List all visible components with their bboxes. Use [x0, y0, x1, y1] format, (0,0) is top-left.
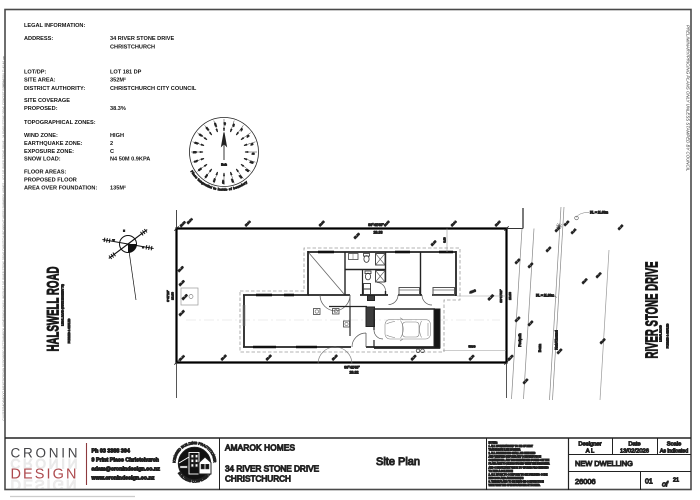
svg-text:CHRISTCHURCH: CHRISTCHURCH	[225, 475, 291, 484]
svg-text:13/02/2026: 13/02/2026	[620, 449, 649, 455]
svg-text:SITE AREA:: SITE AREA:	[24, 78, 56, 84]
svg-text:NEW DWELLING: NEW DWELLING	[575, 459, 633, 468]
svg-text:PRELIMINARY/PRICING PLANS ONLY: PRELIMINARY/PRICING PLANS ONLY UNLESS ST…	[686, 25, 691, 172]
svg-text:5660: 5660	[469, 345, 476, 349]
svg-text:AND VERIFIED BEFORE ANY CONSTR: AND VERIFIED BEFORE ANY CONSTRUCTION	[489, 456, 542, 459]
svg-text:CHRISTCHURCH CITY COUNCIL: CHRISTCHURCH CITY COUNCIL	[110, 86, 197, 92]
svg-text:C:\USERS\ADAM\DOCUMENTS\CRONIN: C:\USERS\ADAM\DOCUMENTS\CRONIN DESIGN\PR…	[2, 79, 6, 420]
svg-text:2. ALL WORK TO CONFORM TO NZ B: 2. ALL WORK TO CONFORM TO NZ BUILDING CO…	[489, 473, 548, 476]
svg-text:RIVER STONE DRIVE: RIVER STONE DRIVE	[642, 262, 662, 359]
svg-text:NZBC3604 AND AMENDMENTS: NZBC3604 AND AMENDMENTS	[489, 477, 524, 480]
svg-text:Site Plan: Site Plan	[376, 456, 420, 468]
svg-text:99°42'40": 99°42'40"	[344, 366, 360, 370]
svg-text:0.99: 0.99	[443, 237, 447, 243]
svg-text:Footpath: Footpath	[518, 333, 522, 346]
svg-text:3. THESE PLANS TO BE READ IN C: 3. THESE PLANS TO BE READ IN CONJUNCTION	[489, 480, 545, 483]
svg-text:26006: 26006	[575, 477, 596, 486]
svg-text:2. ALL DIMENSIONS SHALL BE CHE: 2. ALL DIMENSIONS SHALL BE CHECKED	[489, 452, 536, 455]
svg-text:SITE COVERAGE: SITE COVERAGE	[24, 98, 70, 104]
svg-text:PLANS ARE TO BE DISCUSSED WITH: PLANS ARE TO BE DISCUSSED WITH THE DESIG…	[489, 463, 550, 466]
svg-text:TRADESMAN LIKE MANNER: TRADESMAN LIKE MANNER	[489, 449, 521, 452]
svg-text:N4 50M 0.9KPA: N4 50M 0.9KPA	[110, 157, 150, 163]
svg-text:AREA OVER FOUNDATION:: AREA OVER FOUNDATION:	[24, 186, 97, 192]
svg-text:EARTHQUAKE ZONE:: EARTHQUAKE ZONE:	[24, 141, 83, 147]
svg-text:As indicated: As indicated	[660, 449, 688, 455]
svg-text:29.33: 29.33	[374, 231, 383, 235]
svg-text:TO FIND A SOLUTION: TO FIND A SOLUTION	[489, 470, 514, 473]
svg-text:Date: Date	[628, 442, 640, 448]
svg-text:adam@cronindesign.co.nz: adam@cronindesign.co.nz	[92, 467, 161, 473]
svg-text:TOPOGRAPHICAL ZONES:: TOPOGRAPHICAL ZONES:	[24, 120, 96, 126]
svg-text:9 Print Place Christchurch: 9 Print Place Christchurch	[92, 458, 159, 464]
svg-text:CHRISTCHURCH: CHRISTCHURCH	[110, 45, 155, 51]
svg-text:SNOW LOAD:: SNOW LOAD:	[24, 157, 61, 163]
svg-text:34 RIVER STONE DRIVE: 34 RIVER STONE DRIVE	[225, 465, 320, 474]
svg-text:Ph 03 3388 394: Ph 03 3388 394	[92, 449, 130, 455]
svg-text:FORMED & SEALED: FORMED & SEALED	[666, 324, 670, 349]
svg-text:2: 2	[110, 141, 113, 147]
svg-text:LEGAL ROAD: LEGAL ROAD	[659, 325, 663, 342]
svg-text:LOT/DP:: LOT/DP:	[24, 70, 47, 76]
svg-text:EXPOSURE ZONE:: EXPOSURE ZONE:	[24, 149, 74, 155]
svg-text:34 RIVER STONE DRIVE: 34 RIVER STONE DRIVE	[110, 36, 175, 42]
svg-text:99°42'40": 99°42'40"	[368, 223, 384, 227]
svg-text:AND CONSULTANT PRIOR TO WORKS: AND CONSULTANT PRIOR TO WORKS PROCEEDING	[489, 466, 549, 469]
svg-text:AMAROK HOMES: AMAROK HOMES	[225, 444, 296, 453]
svg-text:3°37'20": 3°37'20"	[166, 290, 170, 302]
svg-text:FLOOR AREAS:: FLOOR AREAS:	[24, 170, 67, 176]
svg-text:ADDRESS:: ADDRESS:	[24, 36, 53, 42]
svg-text:C: C	[110, 149, 114, 155]
svg-text:PROPOSED:: PROPOSED:	[24, 106, 58, 112]
svg-text:COMMENCES. ANY DISCREPANCIES F: COMMENCES. ANY DISCREPANCIES FOUND ON TH…	[489, 459, 550, 462]
svg-text:13.00: 13.00	[508, 292, 512, 300]
svg-text:PROPOSED FLOOR: PROPOSED FLOOR	[24, 178, 77, 184]
svg-text:96°: 96°	[251, 152, 254, 154]
svg-text:LEGAL ROAD (STATE HIGHWAY 75): LEGAL ROAD (STATE HIGHWAY 75)	[62, 284, 65, 326]
svg-text:Berm: Berm	[538, 344, 542, 352]
svg-text:LOT 181 DP: LOT 181 DP	[110, 70, 142, 76]
svg-text:NOTES:: NOTES:	[489, 441, 498, 444]
svg-text:LEGAL INFORMATION:: LEGAL INFORMATION:	[24, 23, 85, 29]
svg-text:North: North	[221, 164, 227, 167]
svg-text:Designer: Designer	[578, 442, 601, 448]
svg-text:13.00: 13.00	[171, 292, 175, 300]
svg-text:www.cronindesign.co.nz: www.cronindesign.co.nz	[91, 476, 155, 482]
svg-text:HIGH: HIGH	[110, 133, 124, 139]
svg-text:176°: 176°	[223, 180, 225, 184]
svg-text:WITH WRITTEN SPECIFICATIONS AT: WITH WRITTEN SPECIFICATIONS ATTACHED.	[489, 484, 541, 487]
svg-text:A L: A L	[586, 449, 595, 455]
svg-text:256°: 256°	[193, 152, 197, 154]
svg-text:16°: 16°	[223, 122, 225, 125]
svg-text:FORMED & SEALED: FORMED & SEALED	[67, 319, 71, 344]
svg-text:21: 21	[673, 478, 679, 484]
svg-text:29.32: 29.32	[350, 371, 359, 375]
svg-text:Kerb/Channel: Kerb/Channel	[555, 330, 559, 350]
svg-text:352M²: 352M²	[110, 77, 126, 84]
svg-text:1. ALL WORKMANSHIP TO BE OF BE: 1. ALL WORKMANSHIP TO BE OF BEST	[489, 445, 534, 448]
svg-text:38.3%: 38.3%	[110, 106, 126, 112]
svg-text:DISTRICT AUTHORITY:: DISTRICT AUTHORITY:	[24, 86, 85, 92]
svg-text:RL = 11.80m: RL = 11.80m	[536, 294, 554, 298]
svg-text:Scale: Scale	[667, 442, 682, 448]
svg-text:135M²: 135M²	[110, 185, 126, 192]
svg-text:RL = 11.63m: RL = 11.63m	[590, 211, 608, 215]
svg-text:01: 01	[645, 479, 653, 486]
svg-text:WIND ZONE:: WIND ZONE:	[24, 133, 58, 139]
svg-text:HALSWELL ROAD: HALSWELL ROAD	[44, 267, 63, 352]
